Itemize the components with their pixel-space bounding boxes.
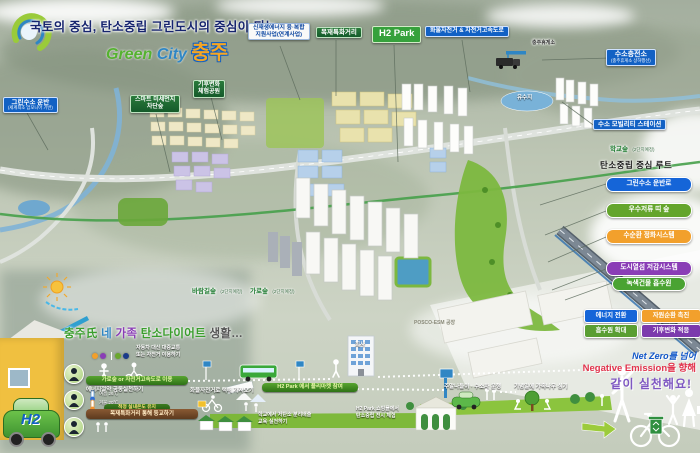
logo-city: City [157, 46, 187, 63]
bus-stop-icon-2 [296, 361, 304, 380]
logo-city-name: 충주 [191, 42, 228, 64]
row2-flea-market-bar: H2 Park 에서 플리마켓 참여 [262, 383, 358, 392]
strategy-climate-adaptation: 기후변화 적응 [641, 324, 700, 338]
green-city-logo: Green City 충주 [106, 42, 228, 65]
label-climate-park: 기후변화 체험공원 [193, 80, 225, 98]
row3-school-education-label: 학교에서 저탄소 분리배출 교육·실천하기 [258, 412, 311, 425]
green-arrow-icon [582, 421, 616, 438]
hydrogen-car: H2 [3, 398, 58, 444]
park-pond [396, 258, 430, 286]
label-reservoir: 유수지 [517, 95, 532, 101]
row3-wood-street-commute-bar: 목재특화거리 통해 등교하기 [86, 409, 198, 419]
anniversary-tree-label: 기념일에 가족나무 심기 [514, 384, 568, 390]
dot-green [115, 353, 121, 359]
car-wheel-left [9, 432, 24, 447]
label-wind-forest: 바람길숲 (2단지예정) [192, 280, 242, 298]
strategy-resource-circulation: 자원순환 촉진 [641, 309, 700, 323]
strategy-absorber-expansion: 흡수원 확대 [584, 324, 638, 338]
label-cargo-bike-highway: 화물자전거 & 자전거고속도로 [425, 26, 509, 37]
car-h2-badge: H2 [3, 411, 58, 428]
row2-summer-temp: 여름 26℃ [99, 391, 118, 396]
strategy-energy-transition: 에너지 전환 [584, 309, 638, 323]
logo-green: Green [106, 46, 152, 63]
route-item-rain-forest-belt: 우수저류 띠 숲 [606, 203, 692, 218]
label-green-h2-transport: 그린수소 운반 (세계최초 암모니아 기반) [3, 97, 58, 113]
legend-divider [111, 352, 112, 360]
label-rest-area: 충주휴게소 [532, 41, 555, 47]
label-school-forest: 학교숲 (2단지예정) [610, 138, 654, 156]
route-item-heat-island: 도시열섬 저감시스템 [606, 261, 692, 276]
dot-orange [92, 353, 98, 359]
poster-tagline: 국토의 중심, 탄소중립 그린도시의 중심이 되는 [30, 20, 277, 34]
route-item-water-purification: 수순환 정화시스템 [606, 229, 692, 244]
car-wheel-right [41, 432, 56, 447]
label-smart-dust-forest: 스마트 미세먼지 차단숲 [130, 95, 180, 113]
commuter-icon [333, 360, 339, 377]
label-h2-station: 수소충전소 (충주휴게소 상하행선) [606, 49, 656, 66]
transport-legend-text: 자동차 대신 대중교통 또는 자전거 이용하기 [136, 345, 180, 358]
masterplan-poster: 국토의 중심, 탄소중립 그린도시의 중심이 되는 Green City 충주 … [0, 0, 700, 453]
recycle-bin-icon [649, 417, 664, 435]
label-renewable-energy: 신재생에너지 융·복합 지원사업(연계사업) [248, 23, 310, 40]
row2-cargo-delivery-label: 화물자전거로 택배 가져오기 [190, 388, 254, 394]
transport-legend-dots [92, 347, 131, 365]
label-street-forest: 가로숲 (2단지예정) [250, 280, 294, 298]
label-h2-park: H2 Park [372, 26, 421, 43]
label-green-building-absorber: 녹색건물 흡수원 [612, 277, 686, 291]
route-item-green-h2-road: 그린수소 운반로 [606, 177, 692, 192]
avatar-child [64, 417, 84, 437]
row1-forest-or-bikehighway-bar: 가로숲 or 자전거고속도로 이용 [86, 376, 188, 385]
label-mobility-station: 수소 모빌리티 스테이션 [593, 119, 666, 130]
h2park-shopping-label: H2 Park 쇼핑몰에서 탄소중립 전시 체험 [356, 406, 399, 419]
slogan-together: 같이 실천해요! [610, 378, 692, 392]
slogan-negative-emission: Negative Emission을 향해 [583, 364, 696, 375]
label-company: 회사 [355, 342, 365, 348]
label-wood-street: 목재특화거리 [316, 27, 362, 38]
weekend-h2-drive-label: 주말나들이 · 수소차 운행 [444, 384, 501, 390]
avatar-father [64, 364, 84, 384]
dot-purple [100, 353, 106, 359]
route-panel-title: 탄소중립 중심 루트 [600, 161, 672, 171]
slogan-net-zero: Net Zero를 넘어 [632, 351, 696, 361]
pond-left [18, 200, 50, 216]
house-window [8, 368, 30, 388]
avatar-mother [64, 390, 84, 410]
dot-navy [123, 353, 129, 359]
label-posco: POSCO-ESM 공장 [414, 321, 455, 327]
family-title: 충주氏 네 가족 탄소다이어트 생활… [64, 328, 243, 341]
